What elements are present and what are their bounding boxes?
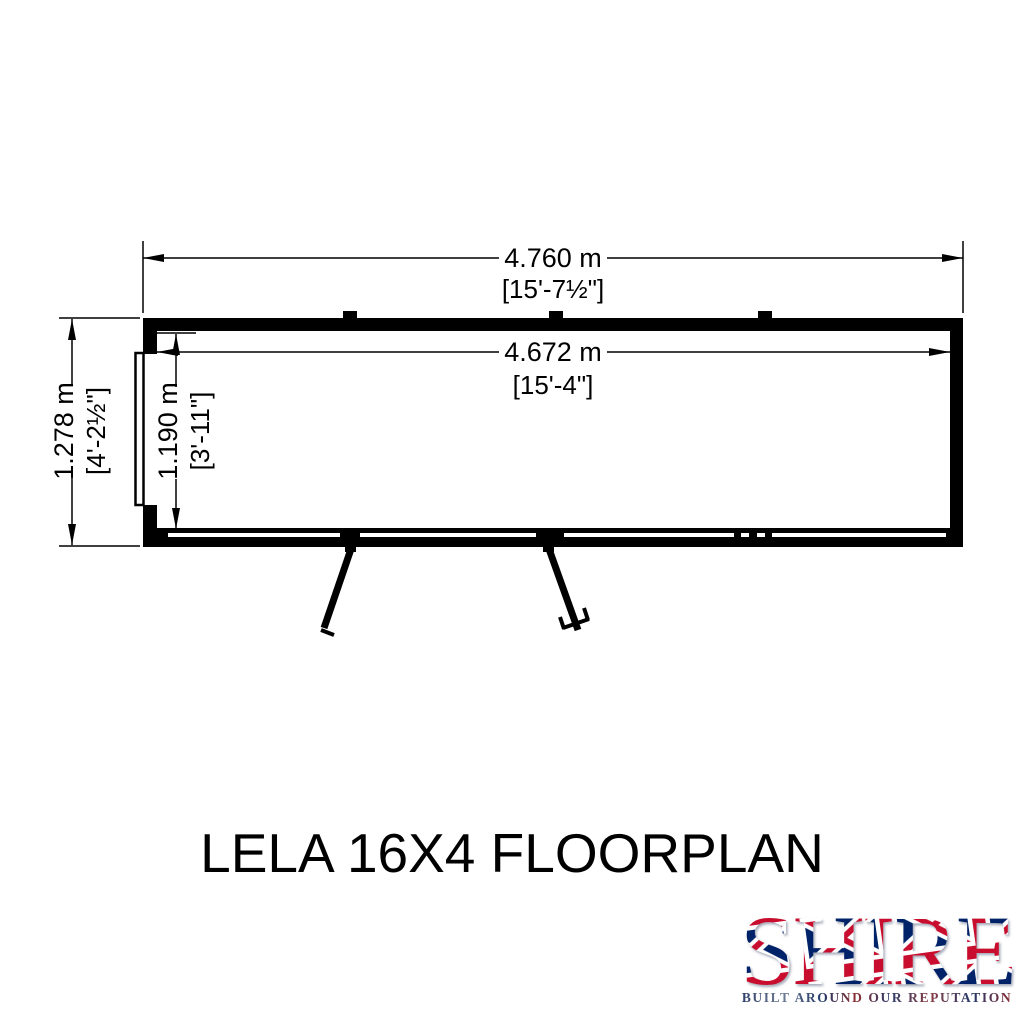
left-end-door-panel	[136, 353, 144, 505]
arrowhead	[942, 254, 963, 262]
arrowhead	[929, 348, 950, 356]
outer-width-metric-label: 4.760 m	[504, 243, 602, 273]
panel-line	[564, 533, 734, 537]
arrowhead	[172, 508, 180, 529]
shire-logo-tagline: BUILT AROUND OUR REPUTATION	[742, 990, 1012, 1005]
door-leaf-right	[549, 549, 578, 630]
top-wall-tab	[343, 311, 357, 318]
panel-line	[741, 533, 749, 537]
floorplan-page: 4.760 m [15'-7½"] 4.672 m [15'-4"] 1.278…	[0, 0, 1024, 1024]
door-leaf-left	[324, 549, 351, 628]
shire-logo: SHIRE BUILT AROUND OUR REPUTATION	[740, 895, 1014, 1006]
panel-line	[360, 533, 536, 537]
inner-depth-metric-label: 1.190 m	[153, 382, 183, 480]
top-wall-tab	[758, 311, 772, 318]
wall-bottom	[143, 528, 963, 547]
arrowhead	[68, 319, 76, 340]
dimension-labels: 4.760 m [15'-7½"] 4.672 m [15'-4"] 1.278…	[49, 243, 604, 480]
page-title: LELA 16X4 FLOORPLAN	[200, 822, 824, 884]
outer-depth-imperial-label: [4'-2½"]	[81, 387, 111, 475]
arrowhead	[172, 334, 180, 355]
door-leaf-left-foot	[321, 630, 334, 635]
floorplan-drawing: 4.760 m [15'-7½"] 4.672 m [15'-4"] 1.278…	[0, 0, 1024, 1024]
inner-width-imperial-label: [15'-4"]	[513, 370, 594, 400]
panel-line	[772, 533, 946, 537]
arrowhead	[143, 254, 164, 262]
panel-line	[757, 533, 765, 537]
wall-right	[950, 318, 963, 547]
outer-depth-metric-label: 1.278 m	[49, 382, 79, 480]
wall-left-top-segment	[143, 318, 157, 354]
door-leaves	[321, 549, 589, 635]
outer-width-imperial-label: [15'-7½"]	[502, 274, 604, 304]
panel-line	[168, 533, 340, 537]
wall-left-bottom-segment	[143, 505, 157, 547]
top-wall-tab	[549, 311, 563, 318]
inner-depth-imperial-label: [3'-11"]	[185, 392, 215, 471]
wall-top	[143, 318, 963, 331]
inner-width-metric-label: 4.672 m	[504, 337, 602, 367]
arrowhead	[68, 524, 76, 545]
